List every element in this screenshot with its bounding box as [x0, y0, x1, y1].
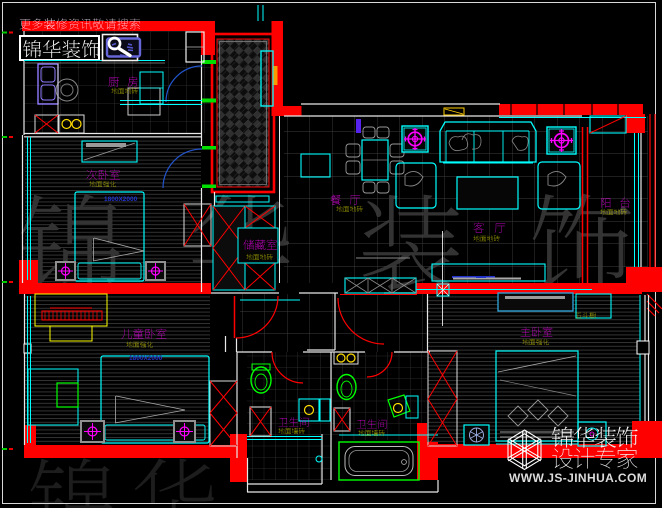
svg-text:1800X2000: 1800X2000 [129, 355, 163, 362]
svg-text:1800X2000: 1800X2000 [104, 196, 138, 203]
svg-text:WWW.JS-JINHUA.COM: WWW.JS-JINHUA.COM [509, 471, 647, 485]
